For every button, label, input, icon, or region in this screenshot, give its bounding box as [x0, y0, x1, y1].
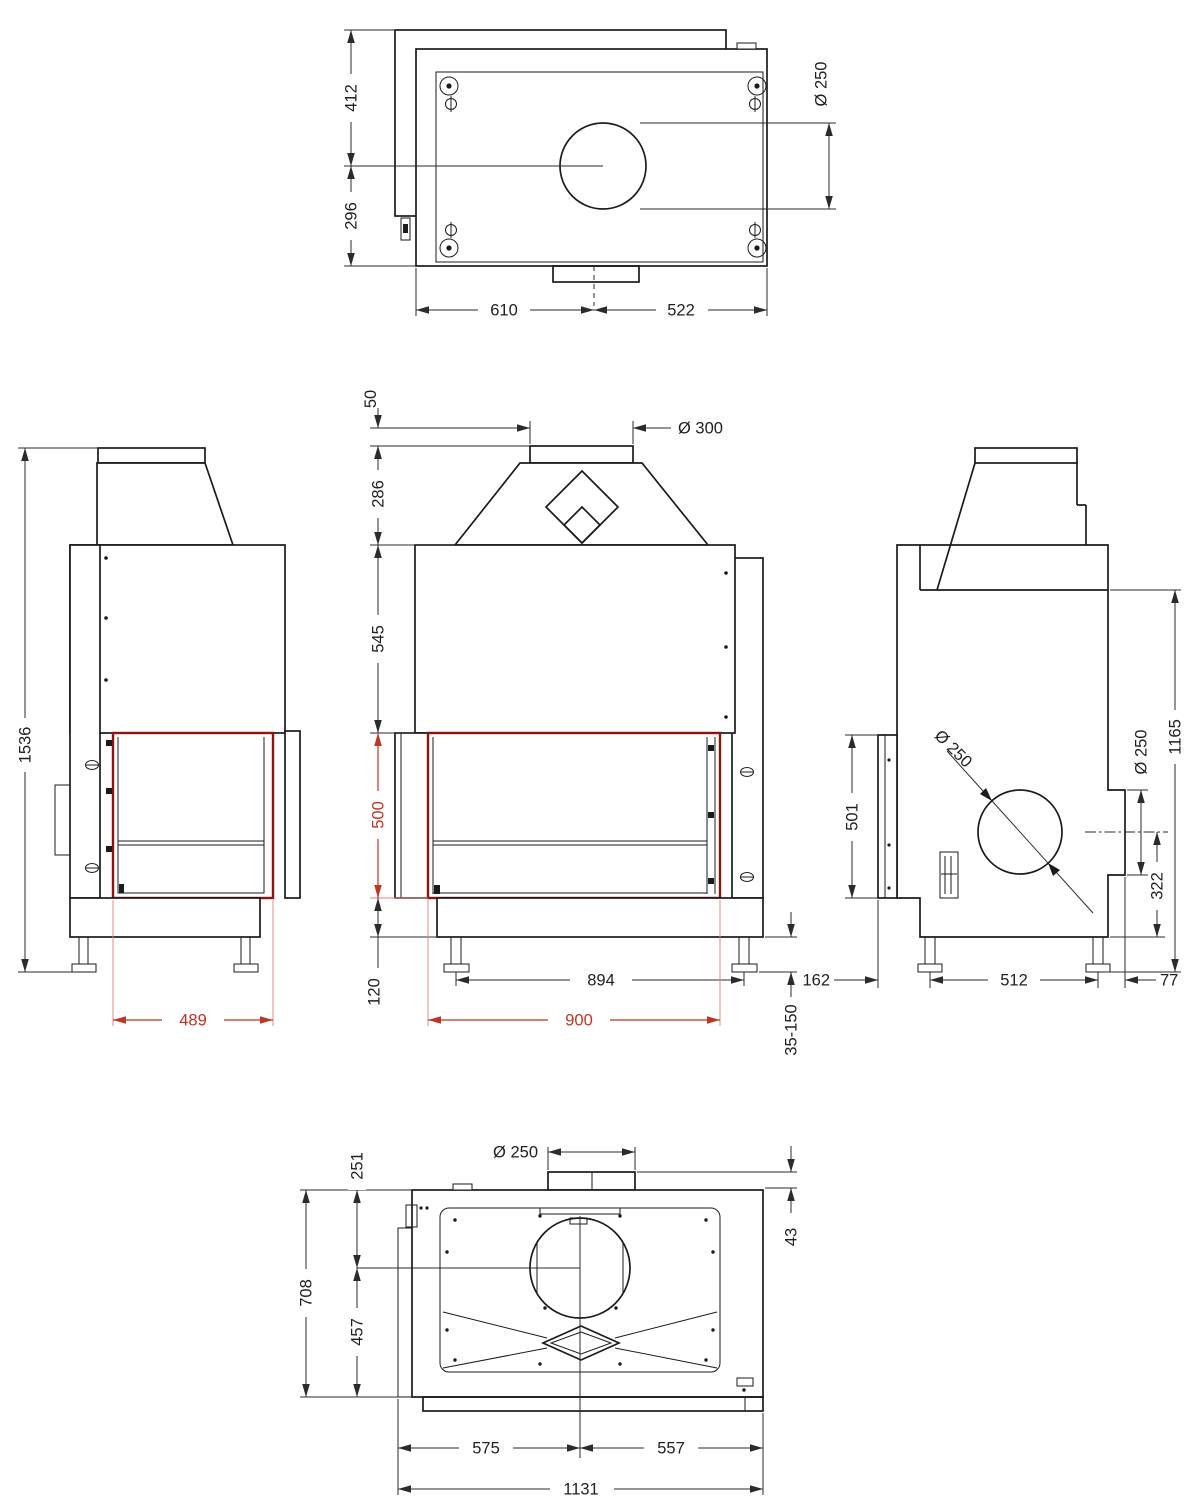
left-hood: [97, 463, 233, 545]
front-view: Ø 300 50 286 545 500 120: [362, 390, 801, 1060]
dim-label-dia250-outlet: Ø 250: [1133, 730, 1151, 775]
left-legs: [72, 937, 258, 972]
dim-label-457: 457: [349, 1318, 367, 1346]
left-front-wall: [70, 545, 100, 898]
drawing-canvas: 412 296 610 522 Ø 250: [0, 0, 1192, 1501]
dim-251-457-708: 251 457 708: [297, 1142, 412, 1397]
dim-501: 501: [843, 735, 878, 898]
left-base: [70, 898, 260, 937]
right-legs: [918, 937, 1110, 972]
dim-label-900: 900: [565, 1012, 593, 1030]
dim-label-500: 500: [370, 801, 388, 829]
front-base: [437, 898, 763, 937]
front-body: [415, 545, 735, 733]
right-side-view: Ø 250 501 Ø 250 322: [802, 448, 1184, 990]
top-view-body: [416, 49, 767, 266]
dim-label-120: 120: [366, 978, 384, 1006]
dim-label-1165: 1165: [1167, 719, 1185, 754]
dim-label-610: 610: [490, 302, 518, 320]
front-legs: [444, 937, 757, 972]
dim-label-251: 251: [349, 1152, 367, 1180]
dim-label-501: 501: [844, 803, 862, 831]
right-body: [897, 545, 1125, 937]
left-side-view: 1536 489: [16, 448, 300, 1030]
dim-label-dia250-bottom: Ø 250: [493, 1144, 538, 1162]
front-grill: [433, 845, 707, 893]
dim-1165: 1165: [1105, 590, 1185, 972]
left-rear-column: [285, 731, 300, 898]
front-right-flange: [732, 558, 763, 898]
dim-label-77: 77: [1160, 972, 1178, 990]
dim-label-296: 296: [343, 202, 361, 230]
left-side-duct: [55, 785, 70, 855]
dim-dia250-bottom: Ø 250: [493, 1144, 635, 1171]
technical-drawing-sheet: 412 296 610 522 Ø 250: [0, 0, 1192, 1501]
left-body: [70, 545, 285, 733]
dim-label-322: 322: [1149, 872, 1167, 900]
dim-label-35-150: 35-150: [783, 1004, 801, 1055]
dim-label-522: 522: [667, 302, 695, 320]
dim-label-489: 489: [179, 1012, 207, 1030]
left-side-glass-door: [113, 733, 273, 898]
front-hood: [455, 463, 708, 545]
bottom-view: Ø 250 43 251 457 708: [297, 1142, 801, 1499]
left-chimney-stub: [98, 448, 205, 463]
dim-label-1131: 1131: [563, 1481, 598, 1499]
dim-label-412: 412: [343, 84, 361, 112]
dim-35-150: 35-150: [759, 912, 801, 1060]
dim-610-522: 610 522: [416, 268, 767, 320]
dim-label-dia250-top: Ø 250: [813, 62, 831, 107]
front-left-side-post: [395, 733, 428, 898]
dim-label-894: 894: [587, 972, 615, 990]
bottom-top-tab: [453, 1184, 472, 1190]
dim-label-708: 708: [298, 1279, 316, 1307]
dim-label-575: 575: [472, 1440, 500, 1458]
front-flue-collar: [530, 446, 633, 463]
dim-label-43: 43: [783, 1228, 801, 1246]
dim-dia300: Ø 300: [370, 420, 723, 445]
right-chimney-stub: [975, 448, 1077, 463]
dim-dia250-outlet: Ø 250: [1127, 730, 1151, 875]
top-view-rear-tab: [737, 43, 756, 49]
dim-label-50: 50: [362, 390, 380, 408]
dim-label-512: 512: [1000, 972, 1028, 990]
dim-label-1536: 1536: [17, 727, 35, 764]
dim-label-286: 286: [370, 480, 388, 508]
top-view-bottom-tab: [553, 266, 639, 282]
dim-label-162: 162: [802, 972, 830, 990]
left-grill: [118, 845, 264, 893]
dim-label-dia300: Ø 300: [678, 420, 723, 438]
dim-label-545: 545: [370, 625, 388, 653]
dim-label-557: 557: [657, 1440, 685, 1458]
bottom-front-lip: [423, 1397, 763, 1411]
dim-894: 894: [456, 972, 744, 990]
top-view: 412 296 610 522 Ø 250: [342, 30, 836, 320]
bottom-side-panel: [398, 1228, 412, 1397]
front-glass-door: [428, 733, 720, 898]
